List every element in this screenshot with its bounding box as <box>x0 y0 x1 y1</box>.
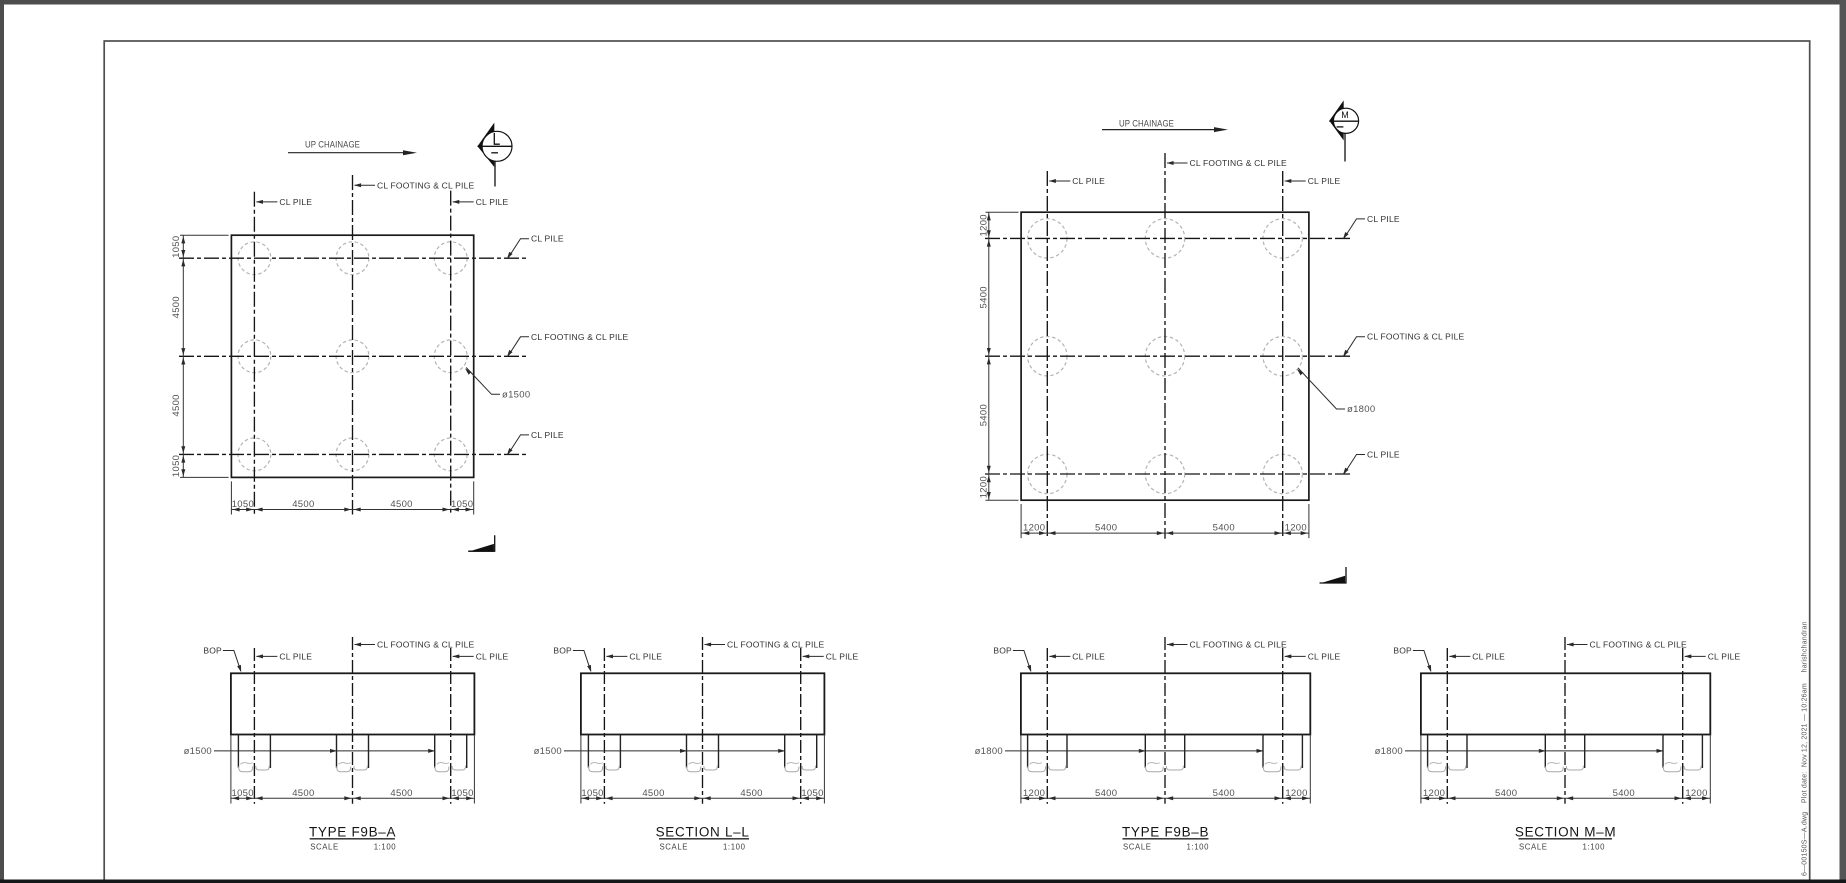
svg-text:CL PILE: CL PILE <box>476 197 509 207</box>
svg-text:CL FOOTING & CL PILE: CL FOOTING & CL PILE <box>377 180 474 190</box>
svg-text:CL FOOTING & CL PILE: CL FOOTING & CL PILE <box>1367 332 1464 342</box>
svg-text:1200: 1200 <box>1285 522 1307 533</box>
svg-text:CL FOOTING & CL PILE: CL FOOTING & CL PILE <box>1190 158 1287 168</box>
svg-text:1200: 1200 <box>979 476 990 498</box>
svg-text:TYPE F9B–A: TYPE F9B–A <box>309 825 396 840</box>
svg-text:CL PILE: CL PILE <box>1308 176 1341 186</box>
svg-text:M: M <box>1341 110 1349 120</box>
svg-text:1050: 1050 <box>451 788 473 799</box>
svg-text:CL PILE: CL PILE <box>1072 176 1105 186</box>
svg-text:4500: 4500 <box>292 788 314 799</box>
svg-text:1:100: 1:100 <box>374 842 397 851</box>
svg-text:CL PILE: CL PILE <box>279 652 312 662</box>
svg-text:1200: 1200 <box>1023 522 1045 533</box>
svg-text:1200: 1200 <box>1285 788 1307 799</box>
svg-text:ø1500: ø1500 <box>534 746 562 757</box>
svg-text:5400: 5400 <box>979 286 990 308</box>
svg-text:SCALE: SCALE <box>660 842 689 851</box>
svg-text:CL FOOTING & CL PILE: CL FOOTING & CL PILE <box>377 640 474 650</box>
svg-text:BOP: BOP <box>1393 646 1412 656</box>
svg-text:5400: 5400 <box>1213 522 1235 533</box>
svg-text:CL PILE: CL PILE <box>1472 652 1505 662</box>
svg-text:5400: 5400 <box>1095 522 1117 533</box>
svg-text:ø1500: ø1500 <box>502 389 530 400</box>
svg-text:5400: 5400 <box>1213 788 1235 799</box>
svg-text:4500: 4500 <box>642 788 664 799</box>
svg-text:BOP: BOP <box>203 646 222 656</box>
svg-text:5400: 5400 <box>979 404 990 426</box>
svg-text:CL FOOTING & CL PILE: CL FOOTING & CL PILE <box>727 640 824 650</box>
svg-text:1050: 1050 <box>451 499 473 510</box>
svg-text:CL PILE: CL PILE <box>279 197 312 207</box>
svg-text:CL PILE: CL PILE <box>531 430 564 440</box>
svg-text:4500: 4500 <box>171 296 182 318</box>
svg-text:1050: 1050 <box>232 499 254 510</box>
svg-text:5400: 5400 <box>1613 788 1635 799</box>
svg-text:UP CHAINAGE: UP CHAINAGE <box>305 140 360 150</box>
svg-text:ø1500: ø1500 <box>184 746 212 757</box>
svg-text:1200: 1200 <box>1023 788 1045 799</box>
svg-text:6—00150S—A.dwg Plot date:: 6—00150S—A.dwg Plot date: Nov 12, 2021 —… <box>1802 621 1809 876</box>
svg-text:BOP: BOP <box>993 646 1012 656</box>
svg-text:CL FOOTING & CL PILE: CL FOOTING & CL PILE <box>1590 640 1687 650</box>
svg-text:5400: 5400 <box>1495 788 1517 799</box>
svg-text:4500: 4500 <box>171 394 182 416</box>
svg-text:CL PILE: CL PILE <box>826 652 859 662</box>
svg-text:1:100: 1:100 <box>1583 842 1606 851</box>
svg-text:CL PILE: CL PILE <box>1367 214 1400 224</box>
svg-text:CL PILE: CL PILE <box>476 652 509 662</box>
svg-text:SECTION L–L: SECTION L–L <box>656 825 750 840</box>
svg-text:1050: 1050 <box>171 236 182 258</box>
svg-text:1050: 1050 <box>232 788 254 799</box>
svg-text:CL FOOTING & CL PILE: CL FOOTING & CL PILE <box>1190 640 1287 650</box>
svg-text:ø1800: ø1800 <box>1375 746 1403 757</box>
svg-text:UP CHAINAGE: UP CHAINAGE <box>1119 119 1174 129</box>
svg-text:4500: 4500 <box>292 499 314 510</box>
svg-text:SECTION M–M: SECTION M–M <box>1515 825 1616 840</box>
svg-text:4500: 4500 <box>390 499 412 510</box>
svg-text:1050: 1050 <box>581 788 603 799</box>
svg-text:SCALE: SCALE <box>1123 842 1152 851</box>
svg-text:BOP: BOP <box>553 646 572 656</box>
svg-text:1:100: 1:100 <box>1187 842 1210 851</box>
svg-text:CL PILE: CL PILE <box>531 234 564 244</box>
svg-text:CL PILE: CL PILE <box>1367 450 1400 460</box>
svg-text:1050: 1050 <box>801 788 823 799</box>
svg-text:CL FOOTING & CL PILE: CL FOOTING & CL PILE <box>531 332 628 342</box>
svg-text:1200: 1200 <box>979 214 990 236</box>
svg-text:4500: 4500 <box>390 788 412 799</box>
svg-text:ø1800: ø1800 <box>1347 404 1375 415</box>
svg-text:1:100: 1:100 <box>723 842 746 851</box>
svg-text:CL PILE: CL PILE <box>1072 652 1105 662</box>
svg-text:1200: 1200 <box>1685 788 1707 799</box>
svg-text:ø1800: ø1800 <box>975 746 1003 757</box>
svg-text:CL PILE: CL PILE <box>629 652 662 662</box>
svg-text:SCALE: SCALE <box>310 842 339 851</box>
svg-text:TYPE F9B–B: TYPE F9B–B <box>1122 825 1209 840</box>
svg-text:1050: 1050 <box>171 455 182 477</box>
svg-text:4500: 4500 <box>740 788 762 799</box>
svg-text:SCALE: SCALE <box>1519 842 1548 851</box>
svg-text:1200: 1200 <box>1423 788 1445 799</box>
svg-text:CL PILE: CL PILE <box>1308 652 1341 662</box>
svg-text:5400: 5400 <box>1095 788 1117 799</box>
svg-text:CL PILE: CL PILE <box>1708 652 1741 662</box>
